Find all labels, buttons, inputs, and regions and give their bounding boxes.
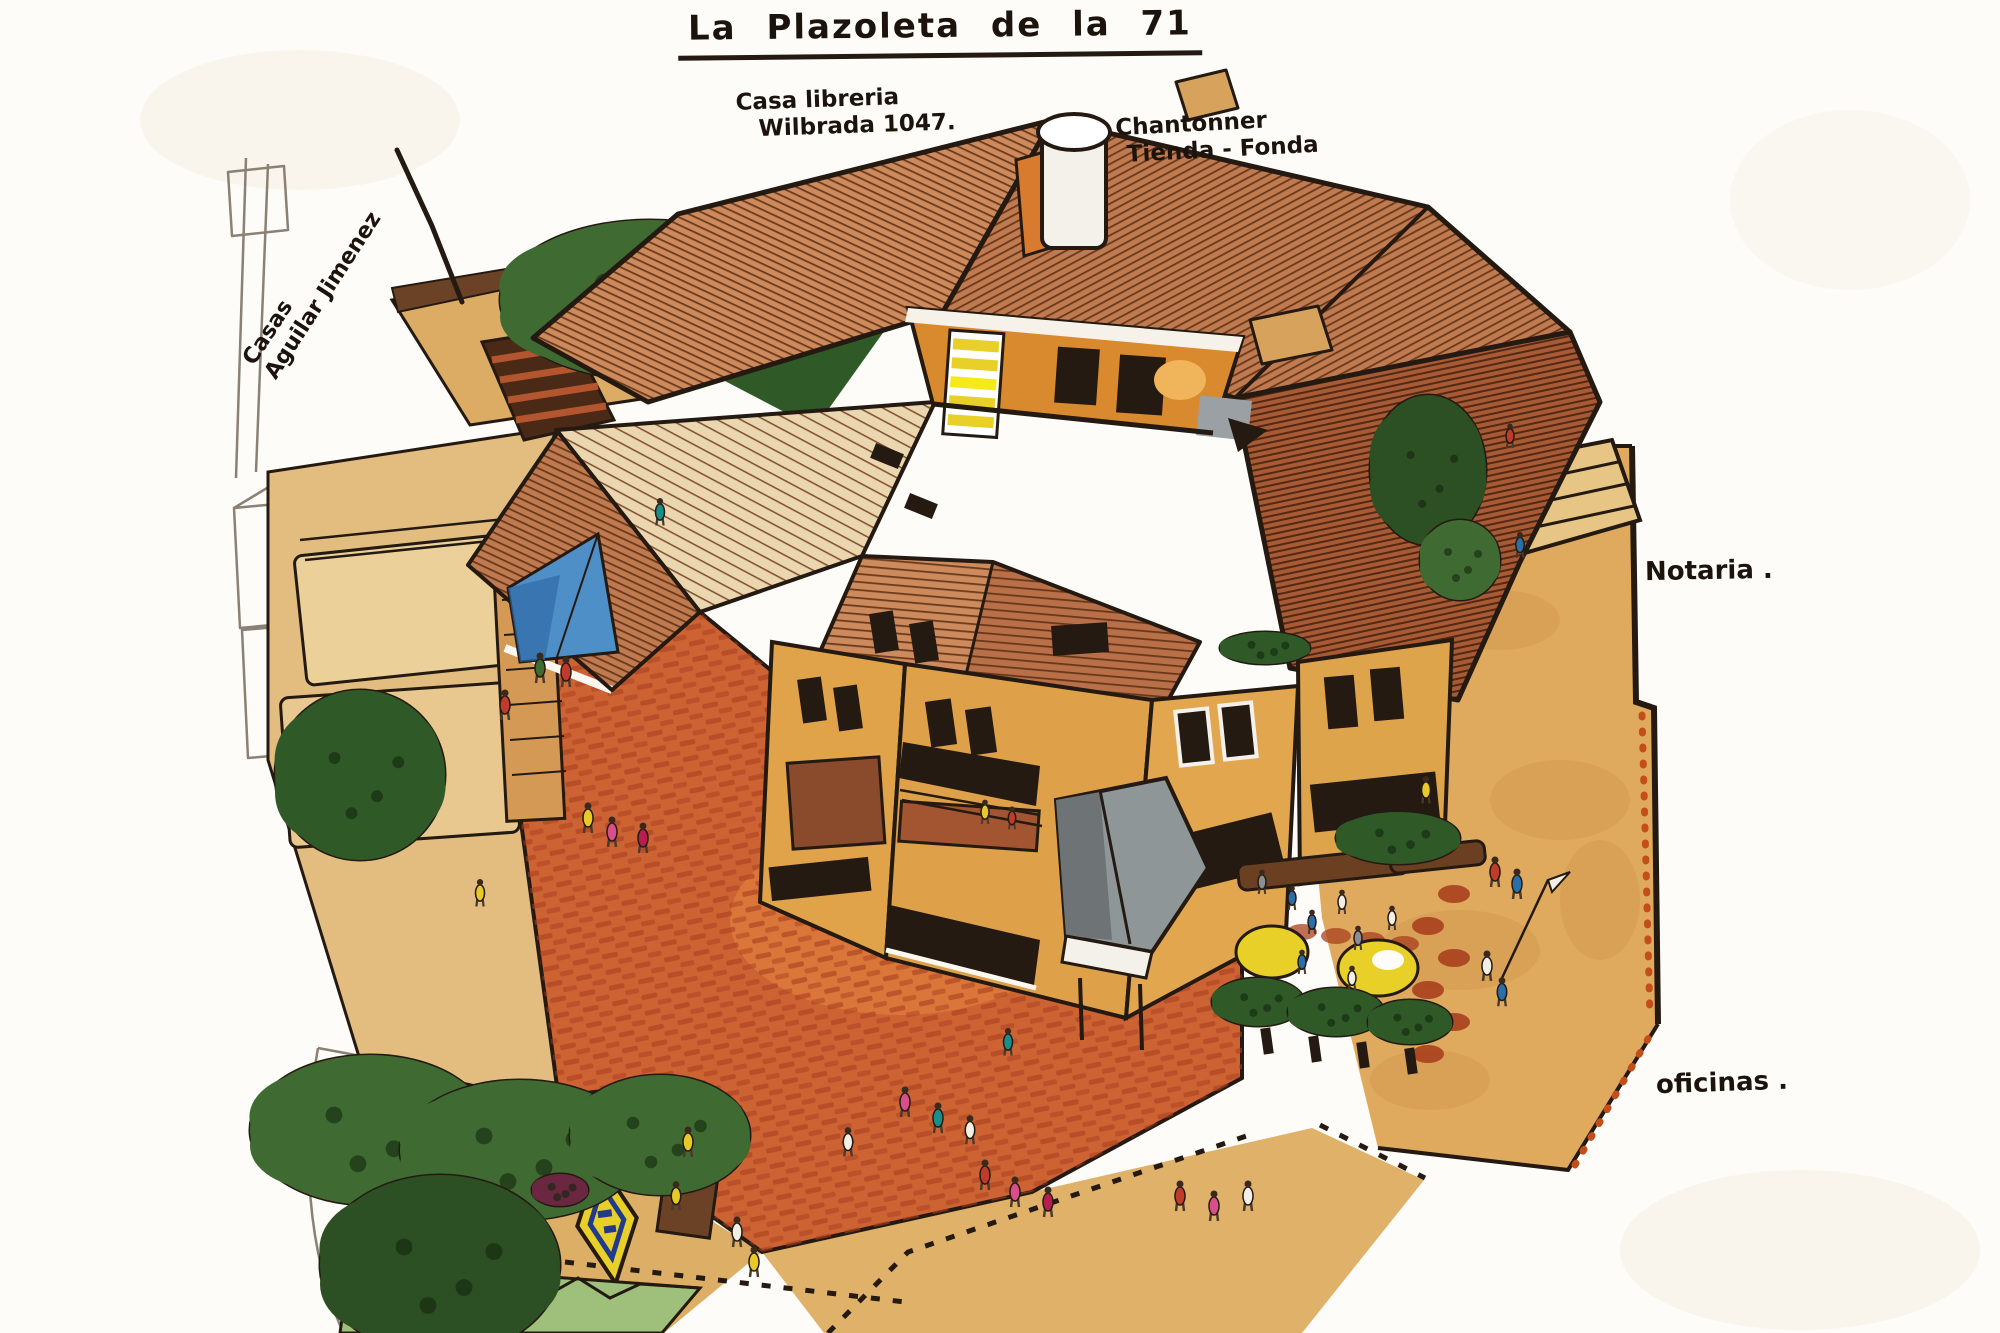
- label-bookstore: Casa libreria Wilbrada 1047.: [735, 82, 956, 144]
- label-offices: oficinas .: [1656, 1066, 1789, 1101]
- label-notary: Notaria .: [1645, 555, 1773, 588]
- courtyard-ladder: [943, 330, 1004, 438]
- sketch-artwork: [0, 0, 2000, 1333]
- label-shop: Chantonner Tienda - Fonda: [1115, 105, 1320, 170]
- drawing-title: La Plazoleta de la 71: [660, 3, 1221, 61]
- lamppost-stroke: [397, 150, 462, 302]
- watercolor-sketch-page: La Plazoleta de la 71 Casa libreria Wilb…: [0, 0, 2000, 1333]
- title-text: La Plazoleta de la 71: [678, 3, 1202, 61]
